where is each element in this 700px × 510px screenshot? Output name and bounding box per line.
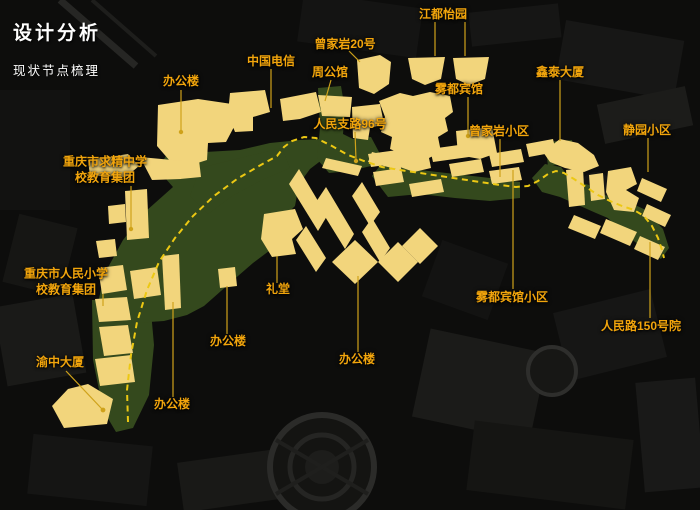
map-label-office-bottom: 办公楼 bbox=[154, 397, 190, 413]
map-label-office-center: 办公楼 bbox=[339, 352, 375, 368]
map-label-zengjiayan-no20: 曾家岩20号 bbox=[314, 37, 375, 53]
map-label-qiujing-school: 重庆市求精中学 校教育集团 bbox=[63, 154, 147, 185]
map-label-wudu-hotel-community: 雾都宾馆小区 bbox=[476, 290, 548, 306]
map-label-line1: 重庆市人民小学 bbox=[24, 266, 108, 282]
map-label-line2: 校教育集团 bbox=[24, 282, 108, 298]
title-block: 设计分析 现状节点梳理 bbox=[13, 18, 101, 79]
map-label-wudu-hotel: 雾都宾馆 bbox=[435, 82, 483, 98]
map-label-line2: 校教育集团 bbox=[63, 170, 147, 186]
map-label-xintai-tower: 鑫泰大厦 bbox=[536, 65, 584, 81]
map-label-renmin-branch-road-96: 人民支路96号 bbox=[313, 117, 386, 133]
page-subtitle: 现状节点梳理 bbox=[13, 60, 101, 79]
map-label-line1: 重庆市求精中学 bbox=[63, 154, 147, 170]
design-analysis-slide: 设计分析 现状节点梳理 办公楼 中国电信 曾家岩20号 周公馆 江都怡园 雾都宾… bbox=[0, 0, 700, 510]
map-label-zengjiayan-community: 曾家岩小区 bbox=[469, 124, 529, 140]
map-label-renmin-primary-school: 重庆市人民小学 校教育集团 bbox=[24, 266, 108, 297]
map-label-renmin-road-150: 人民路150号院 bbox=[601, 319, 681, 335]
map-label-china-telecom: 中国电信 bbox=[247, 54, 295, 70]
map-label-office-top: 办公楼 bbox=[163, 74, 199, 90]
map-canvas bbox=[0, 0, 700, 510]
map-label-jiangdu-garden: 江都怡园 bbox=[419, 7, 467, 23]
map-label-office-mid-left: 办公楼 bbox=[210, 334, 246, 350]
page-title: 设计分析 bbox=[13, 18, 101, 45]
map-label-jingyuan-community: 静园小区 bbox=[623, 123, 671, 139]
map-label-auditorium: 礼堂 bbox=[266, 282, 290, 298]
map-label-zhou-mansion: 周公馆 bbox=[312, 65, 348, 81]
map-label-yuzhong-tower: 渝中大厦 bbox=[36, 355, 84, 371]
